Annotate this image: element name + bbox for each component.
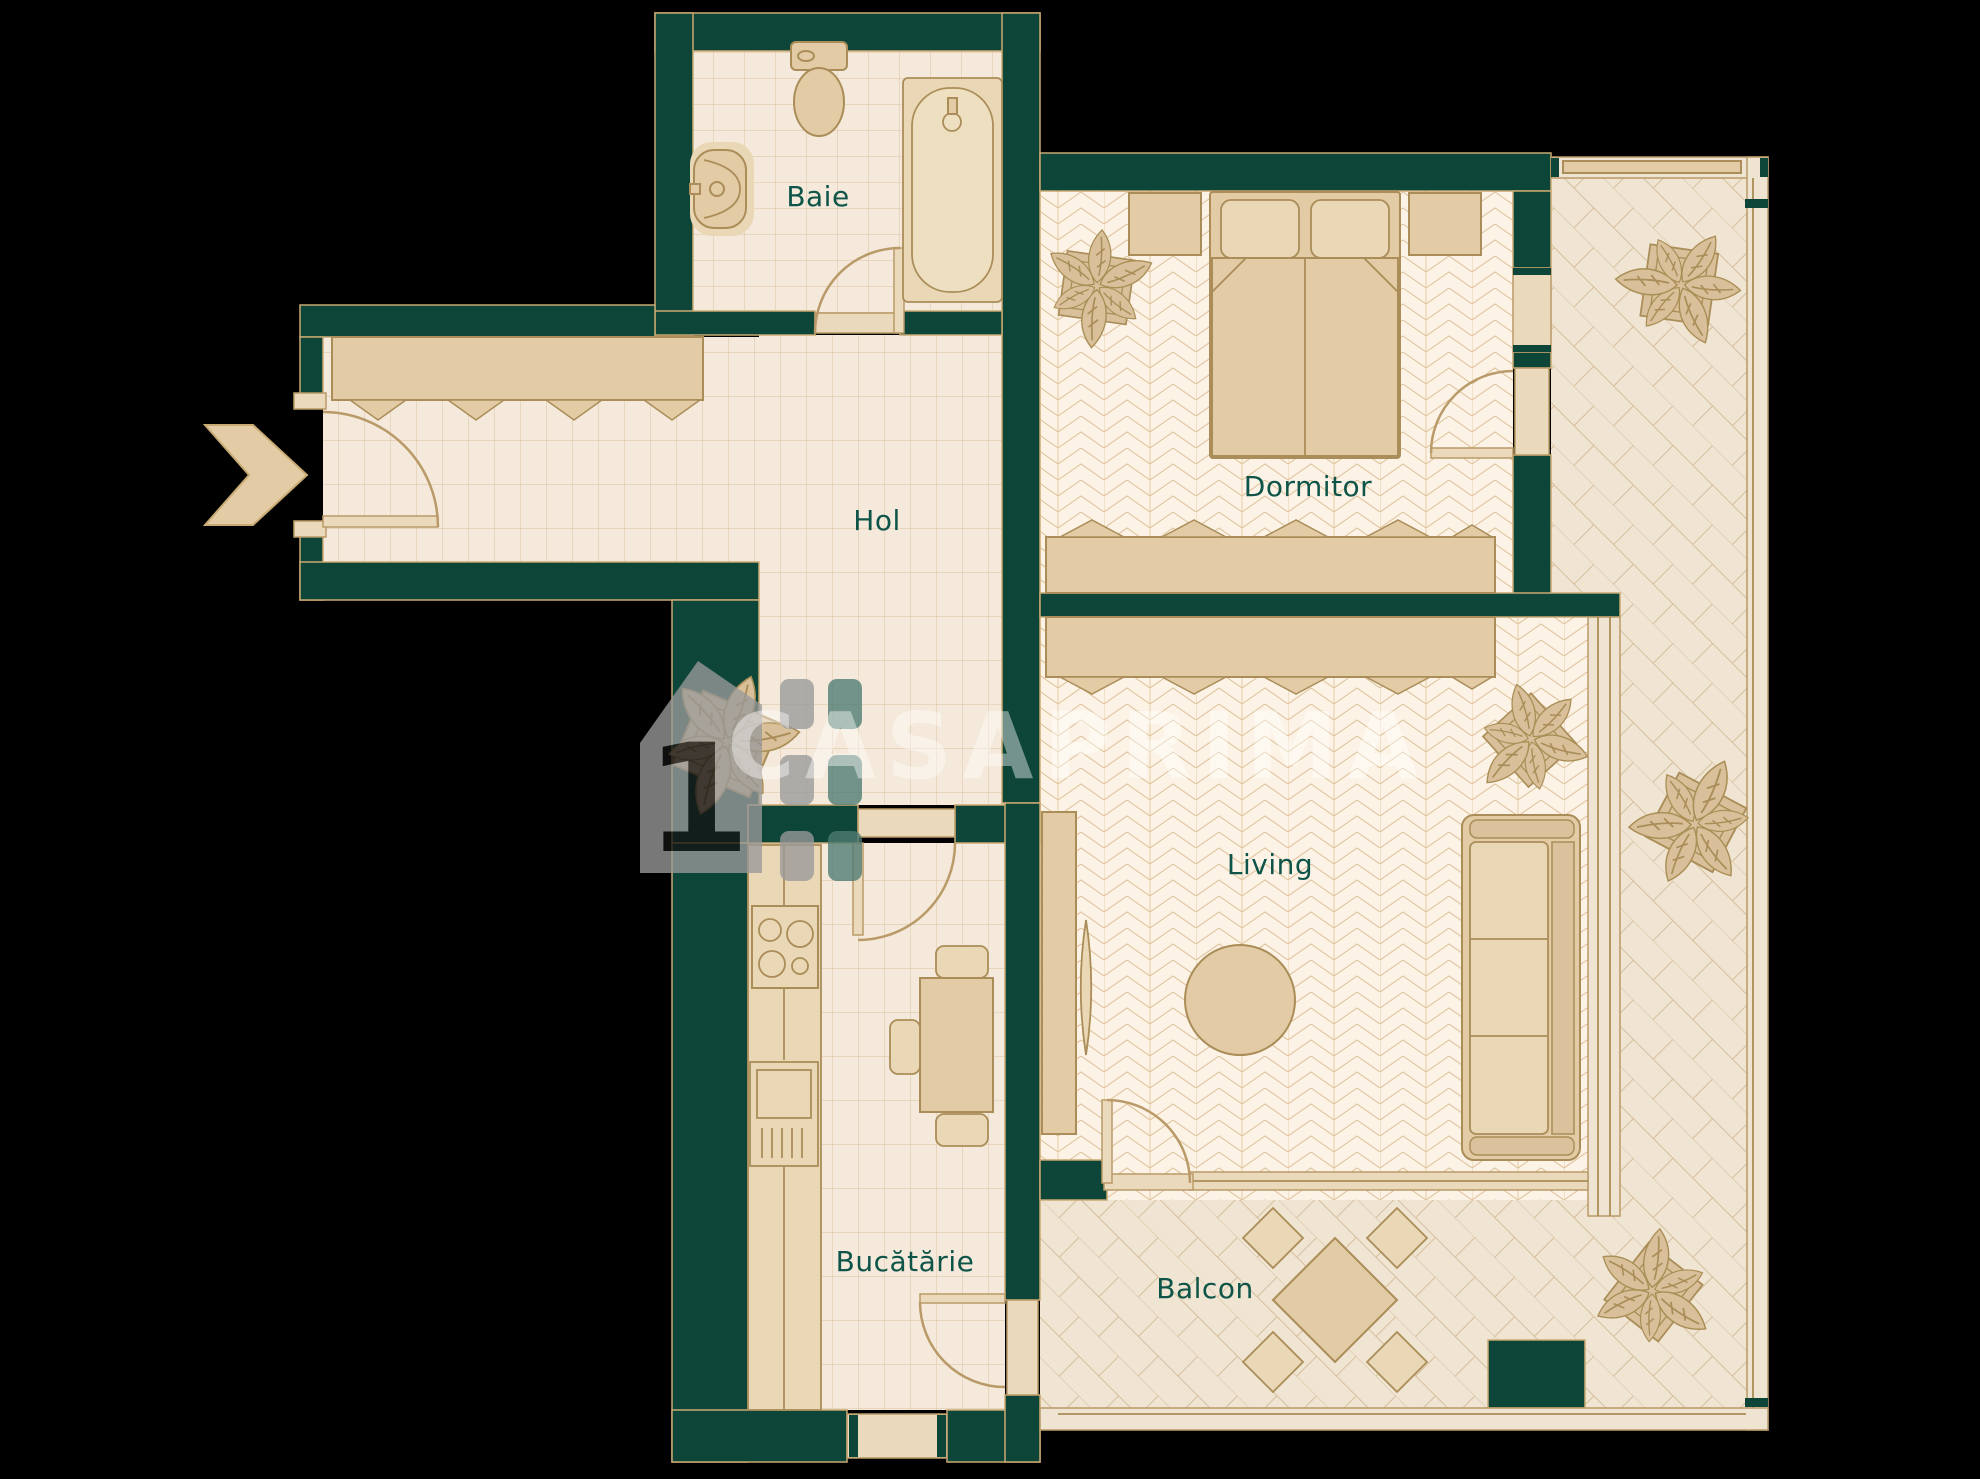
floorplan-svg: Baie Hol Dormitor Living Bucătărie Balco… [0, 0, 1980, 1474]
hol-label: Hol [853, 504, 900, 537]
balcon-label: Balcon [1156, 1272, 1253, 1305]
coffee-table-icon [1185, 945, 1295, 1055]
watermark-text: CASAPRIMA [727, 693, 1428, 800]
sink-icon [690, 142, 754, 236]
terrace-floor-upper [1551, 178, 1747, 617]
balcony-planter-block [1488, 1340, 1585, 1408]
living-glass-wall [1588, 617, 1620, 1216]
balcony-bottom-railing [1040, 1408, 1768, 1430]
bathtub-icon [903, 78, 1002, 302]
toilet-icon [791, 42, 847, 136]
fridge-icon [750, 1062, 818, 1166]
sofa-icon [1462, 815, 1580, 1160]
floorplan-canvas: Baie Hol Dormitor Living Bucătărie Balco… [0, 0, 1980, 1474]
bucatarie-label: Bucătărie [836, 1245, 975, 1278]
terrace-floor-strip [1620, 617, 1747, 1216]
dormitor-label: Dormitor [1244, 470, 1372, 503]
dormitor-window [1513, 268, 1551, 352]
terrace-right-railing [1747, 157, 1768, 1430]
living-label: Living [1227, 848, 1313, 881]
kitchen-window [847, 1414, 947, 1458]
stove-icon [752, 906, 818, 988]
baie-label: Baie [786, 180, 849, 213]
